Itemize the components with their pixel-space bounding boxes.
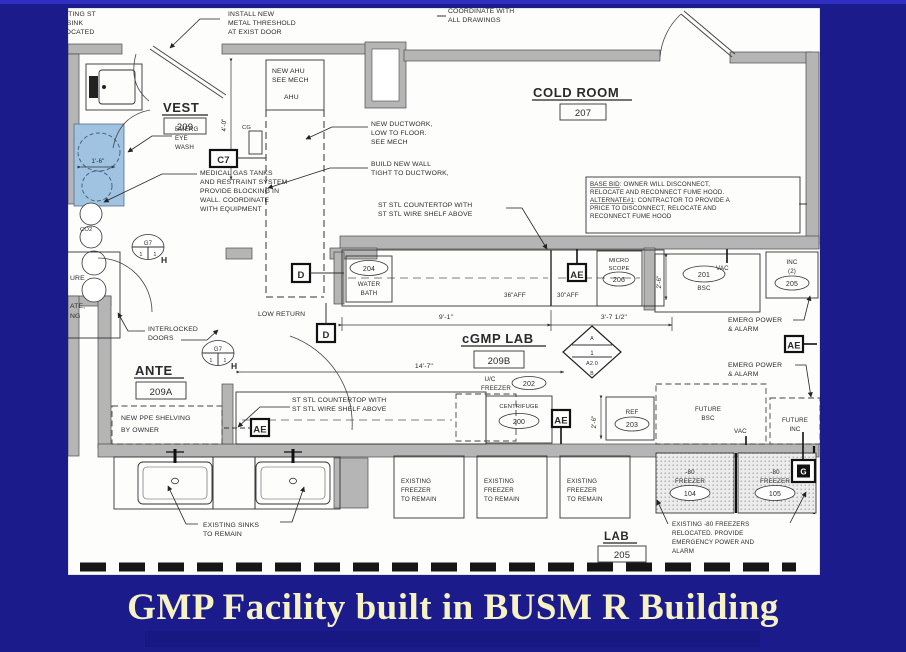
svg-text:& ALARM: & ALARM — [728, 326, 759, 333]
future-inc: FUTURE — [782, 417, 808, 424]
cg-label: CG — [242, 125, 251, 131]
dim-lab-width: 14'-7" — [415, 363, 434, 370]
note-build-wall: BUILD NEW WALL — [371, 161, 431, 168]
room-ante: ANTE — [135, 363, 173, 378]
svg-text:BATH: BATH — [361, 290, 378, 297]
ahu-label: AHU — [284, 94, 299, 101]
note-countertop-1: ST STL COUNTERTOP WITH — [378, 202, 472, 209]
svg-text:1: 1 — [139, 252, 142, 258]
svg-text:203: 203 — [626, 422, 638, 429]
svg-text:METAL THRESHOLD: METAL THRESHOLD — [228, 20, 296, 27]
vac-label-2: VAC — [734, 428, 747, 435]
dim-shower: 1'-6" — [91, 158, 104, 165]
note-low-return: LOW RETURN — [258, 311, 305, 318]
svg-text:EMERGENCY POWER AND: EMERGENCY POWER AND — [672, 539, 755, 546]
svg-text:WASH: WASH — [175, 144, 194, 151]
svg-text:D: D — [322, 330, 329, 341]
svg-text:ST STL WIRE SHELF ABOVE: ST STL WIRE SHELF ABOVE — [378, 211, 473, 218]
room-cold: COLD ROOM — [533, 85, 619, 100]
svg-text:ST STL WIRE SHELF ABOVE: ST STL WIRE SHELF ABOVE — [292, 406, 387, 413]
svg-text:206: 206 — [613, 277, 625, 284]
dim-ref: 2'-6" — [591, 415, 598, 428]
svg-text:SCOPE: SCOPE — [608, 266, 629, 272]
svg-text:AE: AE — [787, 341, 801, 352]
svg-text:RELOCATED. PROVIDE: RELOCATED. PROVIDE — [672, 530, 743, 537]
svg-text:G: G — [800, 468, 806, 477]
svg-text:A2.0: A2.0 — [586, 361, 598, 367]
svg-text:G7: G7 — [214, 347, 223, 353]
svg-text:WALL. COORDINATE: WALL. COORDINATE — [200, 197, 270, 204]
freezer-box-3: EXISTING — [567, 478, 597, 485]
dim-vest: 4'-0" — [221, 118, 228, 131]
presentation-slide: EXISTING ST STL SINK RELOCATED INSTALL N… — [0, 0, 906, 652]
svg-text:BSC: BSC — [697, 285, 711, 292]
note-countertop-2: ST STL COUNTERTOP WITH — [292, 397, 386, 404]
dim-bsc: 2'-6" — [656, 275, 663, 288]
dim-aff30: 30"AFF — [557, 292, 579, 299]
svg-text:1: 1 — [590, 350, 594, 357]
note-eye-wash: EMERG — [175, 126, 198, 133]
svg-text:FREEZER: FREEZER — [567, 487, 597, 494]
note-ppe: NEW PPE SHELVING — [121, 415, 191, 422]
svg-text:205: 205 — [786, 281, 798, 288]
svg-text:SEE MECH: SEE MECH — [371, 139, 408, 146]
note-coordinate: COORDINATE WITH — [448, 8, 514, 15]
dim-counter-right: 3'-7 1/2" — [601, 314, 628, 321]
svg-text:FREEZER: FREEZER — [760, 478, 790, 485]
svg-text:INC: INC — [789, 426, 800, 433]
svg-text:FREEZER: FREEZER — [675, 478, 705, 485]
svg-text:H: H — [161, 255, 167, 265]
vac-label-1: VAC — [716, 265, 729, 272]
svg-text:WATER: WATER — [358, 281, 381, 288]
svg-text:DOORS: DOORS — [148, 335, 174, 342]
svg-text:WITH EQUIPMENT: WITH EQUIPMENT — [200, 206, 262, 213]
clipped-note: URE — [70, 275, 85, 282]
note-ductwork: NEW DUCTWORK, — [371, 121, 433, 128]
floor-plan-drawing: EXISTING ST STL SINK RELOCATED INSTALL N… — [0, 0, 906, 652]
note-sinks: EXISTING SINKS — [203, 522, 259, 529]
svg-text:AT EXIST DOOR: AT EXIST DOOR — [228, 29, 282, 36]
note-interlocked: INTERLOCKED — [148, 326, 198, 333]
svg-text:AND RESTRAINT SYSTEM: AND RESTRAINT SYSTEM — [200, 179, 288, 186]
svg-text:BSC: BSC — [701, 415, 715, 422]
g7-marker-2 — [202, 341, 234, 366]
dim-counter-left: 9'-1" — [439, 314, 454, 321]
note-threshold: INSTALL NEW — [228, 11, 275, 18]
svg-text:TO REMAIN: TO REMAIN — [567, 496, 603, 503]
svg-text:D: D — [297, 270, 304, 281]
future-bsc: FUTURE — [695, 406, 721, 413]
svg-text:1: 1 — [153, 252, 156, 258]
svg-text:NG: NG — [70, 313, 81, 320]
svg-text:RELOCATE AND RECONNECT FUME HO: RELOCATE AND RECONNECT FUME HOOD. — [590, 189, 724, 196]
svg-text:(2): (2) — [788, 268, 796, 275]
room-cgmp-number: 209B — [488, 356, 511, 367]
svg-text:ALL DRAWINGS: ALL DRAWINGS — [448, 17, 501, 24]
note-base-bid: BASE BID: OWNER WILL DISCONNECT, — [590, 181, 710, 188]
svg-text:& ALARM: & ALARM — [728, 371, 759, 378]
tag-bsc: 201 — [698, 272, 710, 279]
note-new-ahu: NEW AHU — [272, 68, 305, 75]
svg-text:ALTERNATE#1: CONTRACTOR TO PRO: ALTERNATE#1: CONTRACTOR TO PROVIDE A — [590, 197, 731, 204]
svg-text:G7: G7 — [144, 241, 153, 247]
tag-inc: INC — [786, 259, 797, 266]
dim-aff36: 36"AFF — [504, 292, 526, 299]
tag-microscope: MICRO — [609, 258, 629, 264]
top-accent-line — [0, 0, 906, 4]
room-cgmp: cGMP LAB — [462, 331, 534, 346]
svg-text:TO REMAIN: TO REMAIN — [401, 496, 437, 503]
svg-text:LOW TO FLOOR.: LOW TO FLOOR. — [371, 130, 427, 137]
svg-text:TO REMAIN: TO REMAIN — [484, 496, 520, 503]
svg-text:FREEZER: FREEZER — [484, 487, 514, 494]
svg-text:200: 200 — [513, 419, 525, 426]
freezer-box-1: EXISTING — [401, 478, 431, 485]
svg-text:PROVIDE BLOCKING IN: PROVIDE BLOCKING IN — [200, 188, 279, 195]
svg-text:105: 105 — [769, 491, 781, 498]
room-lab-number: 205 — [614, 550, 630, 561]
svg-text:B: B — [590, 371, 594, 377]
room-lab: LAB — [604, 531, 629, 543]
svg-text:ATE,: ATE, — [70, 303, 85, 310]
svg-text:FREEZER: FREEZER — [401, 487, 431, 494]
freezer-104: -80 — [685, 469, 695, 476]
svg-text:202: 202 — [523, 381, 535, 388]
svg-text:SEE MECH: SEE MECH — [272, 77, 309, 84]
note-emerg-power-1: EMERG POWER — [728, 317, 782, 324]
tag-uc-freezer: U/C — [484, 376, 495, 383]
svg-text:RECONNECT FUME HOOD: RECONNECT FUME HOOD — [590, 213, 672, 220]
svg-text:H: H — [231, 361, 237, 371]
svg-text:C7: C7 — [217, 155, 229, 166]
room-cold-number: 207 — [575, 108, 591, 119]
svg-text:1: 1 — [209, 358, 212, 364]
svg-text:BY OWNER: BY OWNER — [121, 427, 159, 434]
svg-text:TO REMAIN: TO REMAIN — [203, 531, 242, 538]
tag-ref: REF — [626, 409, 639, 416]
svg-text:ALARM: ALARM — [672, 548, 694, 555]
svg-text:PRICE TO DISCONNECT, RELOCATE: PRICE TO DISCONNECT, RELOCATE AND — [590, 205, 717, 212]
tag-centrifuge: CENTRIFUGE — [499, 404, 538, 410]
note-freezers-relocated: EXISTING -80 FREEZERS — [672, 521, 749, 528]
note-medical-gas: MEDICAL GAS TANKS — [200, 170, 273, 177]
slide-title: GMP Facility built in BUSM R Building — [0, 586, 906, 629]
svg-text:1: 1 — [223, 358, 226, 364]
svg-text:A: A — [590, 336, 594, 342]
room-vest: VEST — [163, 100, 199, 115]
co2-label: CO2 — [80, 227, 92, 233]
svg-text:FREEZER: FREEZER — [481, 385, 511, 392]
svg-text:TIGHT TO DUCTWORK,: TIGHT TO DUCTWORK, — [371, 170, 449, 177]
room-ante-number: 209A — [150, 387, 173, 398]
g7-marker-1 — [132, 235, 164, 260]
svg-text:EYE: EYE — [175, 135, 188, 142]
freezer-box-2: EXISTING — [484, 478, 514, 485]
artifact-band — [145, 631, 760, 647]
svg-text:AE: AE — [570, 270, 584, 281]
tag-water-bath: 204 — [363, 266, 375, 273]
svg-text:104: 104 — [684, 491, 696, 498]
svg-text:AE: AE — [253, 425, 267, 436]
note-emerg-power-2: EMERG POWER — [728, 362, 782, 369]
svg-text:AE: AE — [554, 416, 568, 427]
freezer-105: -80 — [770, 469, 780, 476]
